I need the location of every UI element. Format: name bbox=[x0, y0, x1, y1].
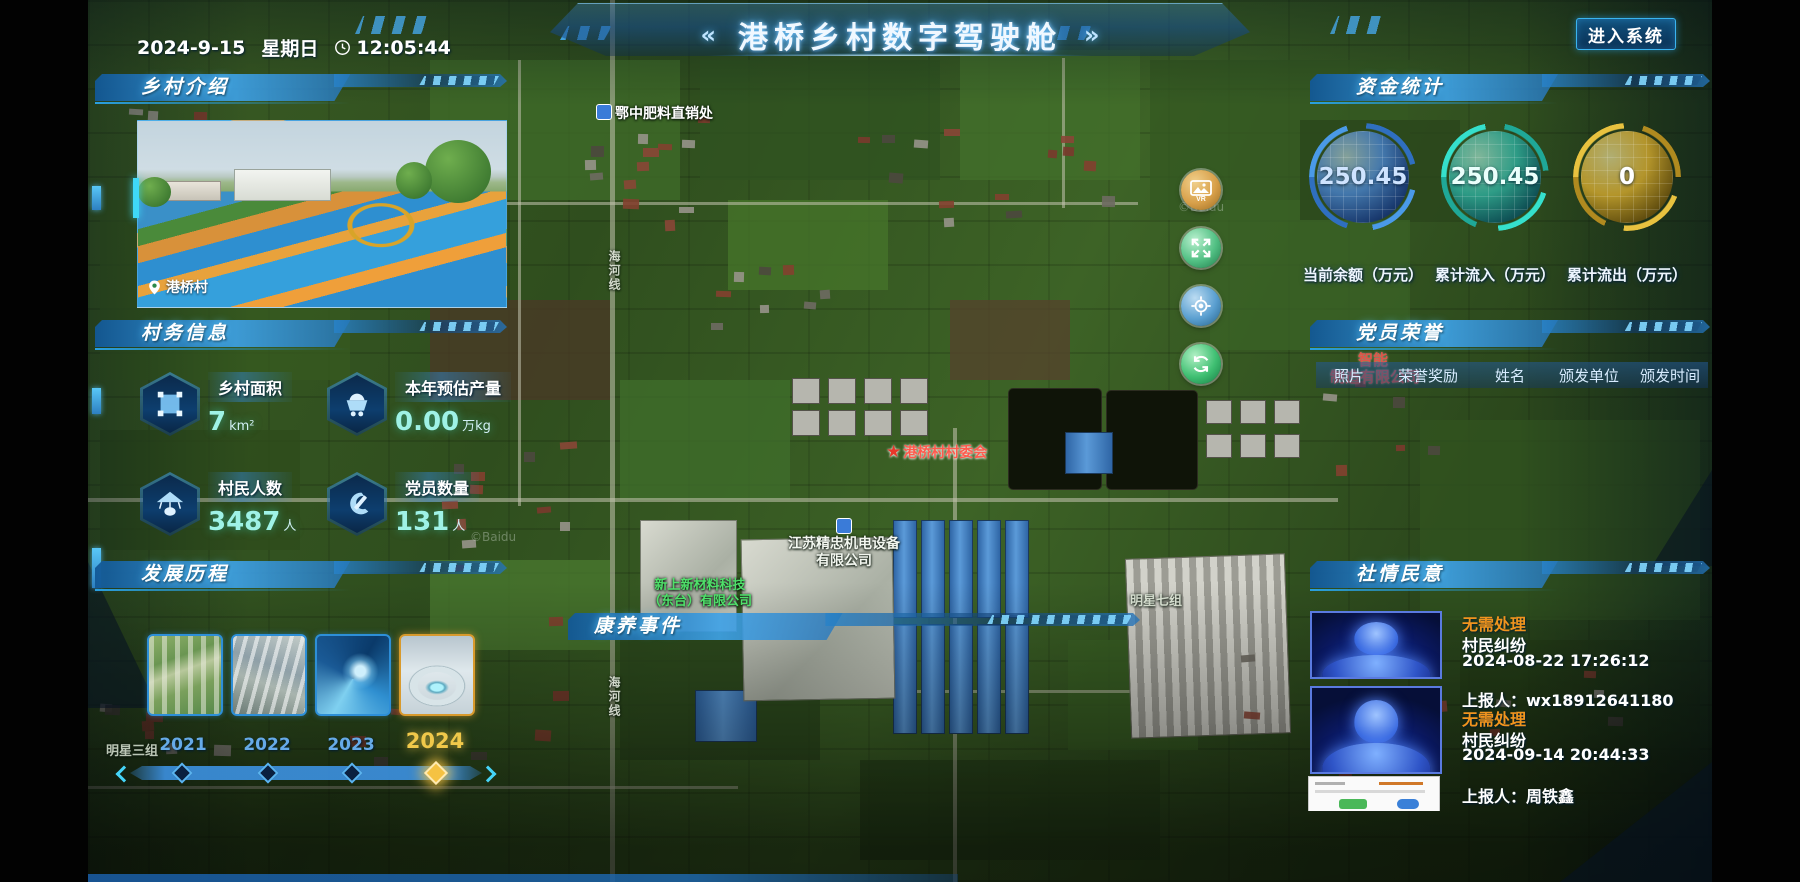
locate-button[interactable] bbox=[1181, 286, 1221, 326]
deco-dashes-left bbox=[355, 16, 429, 34]
map-road-label: 海河线 bbox=[606, 250, 623, 292]
column-issuer: 颁发单位 bbox=[1546, 365, 1632, 386]
frame-accent-block bbox=[92, 388, 101, 414]
map-feature bbox=[637, 162, 649, 171]
map-feature bbox=[949, 624, 973, 734]
development-thumb-2023[interactable] bbox=[315, 634, 391, 716]
title-right-chevron-icon: » bbox=[1084, 21, 1100, 49]
health-events-label: 康养事件 bbox=[568, 613, 1140, 640]
stat-label: 乡村面积 bbox=[208, 372, 292, 402]
datetime-bar: 2024-9-15 星期日 12:05:44 bbox=[137, 34, 451, 61]
health-events-bar[interactable]: 康养事件 bbox=[568, 613, 1140, 640]
map-feature bbox=[1106, 390, 1198, 490]
map-feature bbox=[1206, 434, 1232, 458]
stat-unit: 人 bbox=[283, 519, 296, 534]
title-glow bbox=[704, 53, 1096, 56]
map-feature bbox=[728, 200, 888, 290]
opinion-reporter: 上报人：周铁鑫 bbox=[1462, 783, 1574, 807]
map-feature bbox=[1396, 445, 1405, 451]
avatar bbox=[1310, 686, 1442, 774]
chevron-right-icon[interactable] bbox=[480, 766, 497, 783]
map-feature bbox=[828, 378, 856, 404]
development-thumb-2022[interactable] bbox=[231, 634, 307, 716]
stat-label: 村民人数 bbox=[208, 472, 292, 502]
map-feature bbox=[960, 50, 1140, 180]
opinion-time: 2024-08-22 17:26:12 bbox=[1462, 651, 1650, 670]
stat-label: 党员数量 bbox=[395, 472, 479, 502]
page-title: 港桥乡村数字驾驶舱 bbox=[738, 13, 1062, 57]
title-left-chevron-icon: « bbox=[700, 21, 716, 49]
development-thumb-2021[interactable] bbox=[147, 634, 223, 716]
chevron-left-icon[interactable] bbox=[116, 766, 133, 783]
map-feature bbox=[679, 207, 694, 213]
map-feature bbox=[1063, 146, 1075, 156]
panel-party-honor-header: 党员荣誉 bbox=[1310, 320, 1710, 347]
panel-public-opinion-header: 社情民意 bbox=[1310, 561, 1710, 588]
map-feature bbox=[858, 137, 870, 144]
time-text: 12:05:44 bbox=[356, 37, 451, 59]
development-title: 发展历程 bbox=[95, 561, 507, 588]
gauge-label-outflow: 累计流出（万元） bbox=[1557, 264, 1697, 285]
map-feature bbox=[129, 109, 143, 116]
map-feature bbox=[623, 180, 636, 190]
map-feature bbox=[559, 441, 576, 449]
column-photo: 照片 bbox=[1316, 365, 1382, 386]
bottom-frame-strip bbox=[88, 874, 958, 882]
map-feature bbox=[921, 624, 945, 734]
public-opinion-list: 无需处理 村民纠纷 2024-08-22 17:26:12 上报人：wx1891… bbox=[1308, 605, 1710, 811]
party-honor-table-header: 照片 荣誉奖励 姓名 颁发单位 颁发时间 bbox=[1316, 362, 1708, 388]
map-feature bbox=[1005, 520, 1029, 618]
map-feature bbox=[620, 380, 790, 500]
stat-value: 7 bbox=[208, 407, 226, 437]
hexagon-badge bbox=[140, 472, 200, 536]
map-feature bbox=[1393, 397, 1405, 408]
cart-icon bbox=[341, 388, 373, 420]
expand-icon bbox=[1190, 237, 1212, 259]
opinion-screenshot-thumb[interactable] bbox=[1308, 776, 1440, 811]
timeline-slider[interactable] bbox=[118, 765, 494, 781]
photo-building bbox=[234, 169, 332, 201]
map-poi-village-committee: ★港桥村村委会 bbox=[886, 442, 987, 462]
area-icon bbox=[154, 388, 186, 420]
stat-party-member-count: 党员数量 131人 bbox=[327, 472, 513, 538]
gauge-label-inflow: 累计流入（万元） bbox=[1425, 264, 1565, 285]
opinion-time: 2024-09-14 20:44:33 bbox=[1462, 745, 1650, 764]
year-2021[interactable]: 2021 bbox=[147, 735, 219, 755]
right-black-bar bbox=[1712, 0, 1800, 882]
village-photo: 港桥村 bbox=[137, 120, 507, 308]
map-feature bbox=[591, 146, 604, 157]
map-feature bbox=[585, 160, 597, 170]
map-feature bbox=[548, 617, 562, 627]
hexagon-badge bbox=[140, 372, 200, 436]
map-feature bbox=[783, 265, 794, 276]
map-feature bbox=[949, 520, 973, 618]
map-feature bbox=[943, 129, 959, 137]
map-feature bbox=[1102, 196, 1115, 207]
fullscreen-button[interactable] bbox=[1181, 228, 1221, 268]
stat-villager-count: 村民人数 3487人 bbox=[140, 472, 326, 538]
map-feature bbox=[1322, 394, 1336, 402]
map-feature bbox=[888, 173, 903, 185]
weekday-text: 星期日 bbox=[261, 34, 318, 61]
map-feature bbox=[864, 378, 892, 404]
map-feature bbox=[913, 140, 927, 149]
village-intro-title: 乡村介绍 bbox=[95, 74, 507, 101]
column-issue-time: 颁发时间 bbox=[1632, 365, 1708, 386]
map-feature bbox=[1243, 711, 1259, 719]
map-feature bbox=[864, 410, 892, 436]
column-award: 荣誉奖励 bbox=[1382, 365, 1474, 386]
svg-text:VR: VR bbox=[1196, 196, 1206, 202]
map-feature bbox=[882, 135, 895, 143]
map-feature bbox=[142, 721, 154, 732]
map-poi-fertilizer: 鄂中肥料直销处 bbox=[596, 103, 713, 123]
map-feature bbox=[428, 202, 1138, 205]
public-opinion-title: 社情民意 bbox=[1310, 561, 1710, 588]
map-feature bbox=[1274, 434, 1300, 458]
map-feature bbox=[682, 140, 695, 148]
stat-estimated-output: 本年预估产量 0.00万kg bbox=[327, 372, 513, 438]
gauge-label-balance: 当前余额（万元） bbox=[1293, 264, 1433, 285]
hexagon-badge bbox=[327, 372, 387, 436]
map-feature bbox=[1084, 160, 1096, 170]
village-info-title: 村务信息 bbox=[95, 320, 507, 347]
map-feature bbox=[977, 520, 1001, 618]
map-feature bbox=[792, 378, 820, 404]
enter-system-button[interactable]: 进入系统 bbox=[1576, 18, 1676, 50]
map-feature bbox=[553, 691, 569, 701]
map-feature bbox=[610, 0, 615, 882]
map-feature bbox=[716, 291, 731, 298]
map-feature bbox=[1274, 400, 1300, 424]
map-feature bbox=[524, 452, 535, 462]
deco-dashes-right bbox=[1330, 16, 1392, 34]
hexagon-badge bbox=[327, 472, 387, 536]
map-feature bbox=[665, 220, 675, 231]
date-text: 2024-9-15 bbox=[137, 37, 245, 59]
map-feature bbox=[1065, 432, 1113, 474]
gauge-current-balance: 250.45 bbox=[1312, 126, 1414, 228]
picture-vr-icon: VR bbox=[1189, 178, 1213, 202]
map-feature bbox=[819, 290, 829, 300]
map-feature bbox=[560, 521, 570, 530]
map-feature bbox=[900, 378, 928, 404]
column-name: 姓名 bbox=[1474, 365, 1546, 386]
stat-value: 131 bbox=[395, 507, 449, 537]
map-feature bbox=[995, 194, 1009, 200]
map-feature bbox=[977, 624, 1001, 734]
map-feature bbox=[471, 752, 487, 760]
map-feature bbox=[623, 198, 639, 209]
map-feature bbox=[589, 173, 602, 181]
gauge-value: 250.45 bbox=[1444, 126, 1546, 228]
map-feature bbox=[1125, 553, 1291, 738]
stat-unit: km² bbox=[229, 419, 254, 434]
frame-accent-block bbox=[92, 186, 101, 210]
map-poi-group7: 明星七组 bbox=[1130, 590, 1182, 609]
gauge-value: 0 bbox=[1576, 126, 1678, 228]
development-thumb-2024[interactable] bbox=[399, 634, 475, 716]
map-feature bbox=[860, 760, 1160, 860]
year-2023[interactable]: 2023 bbox=[315, 735, 387, 755]
stat-value: 3487 bbox=[208, 507, 280, 537]
map-feature bbox=[921, 520, 945, 618]
refresh-button[interactable] bbox=[1181, 344, 1221, 384]
stat-village-area: 乡村面积 7km² bbox=[140, 372, 326, 438]
map-feature bbox=[658, 144, 672, 151]
stat-unit: 万kg bbox=[462, 419, 491, 434]
map-feature bbox=[711, 323, 723, 330]
year-2024[interactable]: 2024 bbox=[399, 729, 471, 753]
left-black-bar bbox=[0, 0, 88, 882]
map-feature bbox=[759, 267, 771, 276]
map-poi-company1: 江苏精忠机电设备有限公司 bbox=[788, 518, 900, 570]
map-feature bbox=[1005, 210, 1022, 218]
map-feature bbox=[1062, 58, 1065, 208]
building-poi-icon bbox=[836, 518, 852, 534]
map-feature bbox=[803, 301, 816, 309]
map-feature bbox=[1428, 446, 1440, 455]
map-feature bbox=[88, 786, 738, 789]
map-feature bbox=[944, 218, 954, 227]
funds-title: 资金统计 bbox=[1310, 74, 1710, 101]
villager-icon bbox=[154, 488, 186, 520]
map-feature bbox=[1061, 136, 1075, 144]
star-icon: ★ bbox=[886, 442, 901, 462]
map-feature bbox=[950, 300, 1070, 380]
photo-tree bbox=[396, 162, 433, 199]
map-feature bbox=[1336, 465, 1348, 476]
map-feature bbox=[1240, 434, 1266, 458]
avatar bbox=[1310, 611, 1442, 679]
shop-poi-icon bbox=[596, 104, 612, 120]
photo-bracket-deco bbox=[133, 178, 139, 218]
clock-icon bbox=[334, 39, 351, 56]
photo-tree bbox=[425, 140, 491, 203]
stat-unit: 人 bbox=[452, 519, 465, 534]
party-honor-title: 党员荣誉 bbox=[1310, 320, 1710, 347]
gauge-total-inflow: 250.45 bbox=[1444, 126, 1546, 228]
title-bar: « 港桥乡村数字驾驶舱 » bbox=[550, 3, 1250, 56]
photo-tree bbox=[138, 177, 171, 207]
map-feature bbox=[792, 410, 820, 436]
vr-view-button[interactable]: VR bbox=[1181, 170, 1221, 210]
crosshair-icon bbox=[1190, 295, 1212, 317]
panel-development-header: 发展历程 bbox=[95, 561, 507, 588]
map-feature bbox=[1206, 400, 1232, 424]
map-poi-company2: 新上新材料科技（东台）有限公司 bbox=[648, 578, 752, 610]
gauge-value: 250.45 bbox=[1312, 126, 1414, 228]
panel-village-info-header: 村务信息 bbox=[95, 320, 507, 347]
map-feature bbox=[828, 410, 856, 436]
photo-location-caption: 港桥村 bbox=[148, 277, 208, 297]
map-feature bbox=[939, 201, 954, 208]
party-icon bbox=[341, 488, 373, 520]
map-feature bbox=[900, 410, 928, 436]
timeline-marker-2022[interactable] bbox=[257, 762, 278, 783]
map-feature bbox=[535, 729, 552, 741]
panel-village-intro-header: 乡村介绍 bbox=[95, 74, 507, 101]
map-feature bbox=[1241, 654, 1255, 662]
timeline-marker-2021[interactable] bbox=[171, 762, 192, 783]
map-feature bbox=[1048, 150, 1058, 159]
map-feature bbox=[1240, 400, 1266, 424]
refresh-icon bbox=[1190, 353, 1212, 375]
stat-label: 本年预估产量 bbox=[395, 372, 511, 402]
map-feature bbox=[536, 507, 551, 514]
stat-value: 0.00 bbox=[395, 407, 459, 437]
map-feature bbox=[638, 134, 648, 144]
map-feature bbox=[700, 60, 940, 180]
gauge-total-outflow: 0 bbox=[1576, 126, 1678, 228]
map-feature bbox=[893, 624, 917, 734]
location-pin-icon bbox=[148, 280, 161, 295]
map-feature bbox=[518, 60, 521, 506]
map-feature bbox=[760, 305, 769, 314]
map-feature bbox=[1005, 624, 1029, 734]
timeline-marker-2023[interactable] bbox=[341, 762, 362, 783]
map-road-label: 海河线 bbox=[606, 676, 623, 718]
panel-funds-header: 资金统计 bbox=[1310, 74, 1710, 101]
year-2022[interactable]: 2022 bbox=[231, 735, 303, 755]
map-feature bbox=[734, 272, 744, 282]
